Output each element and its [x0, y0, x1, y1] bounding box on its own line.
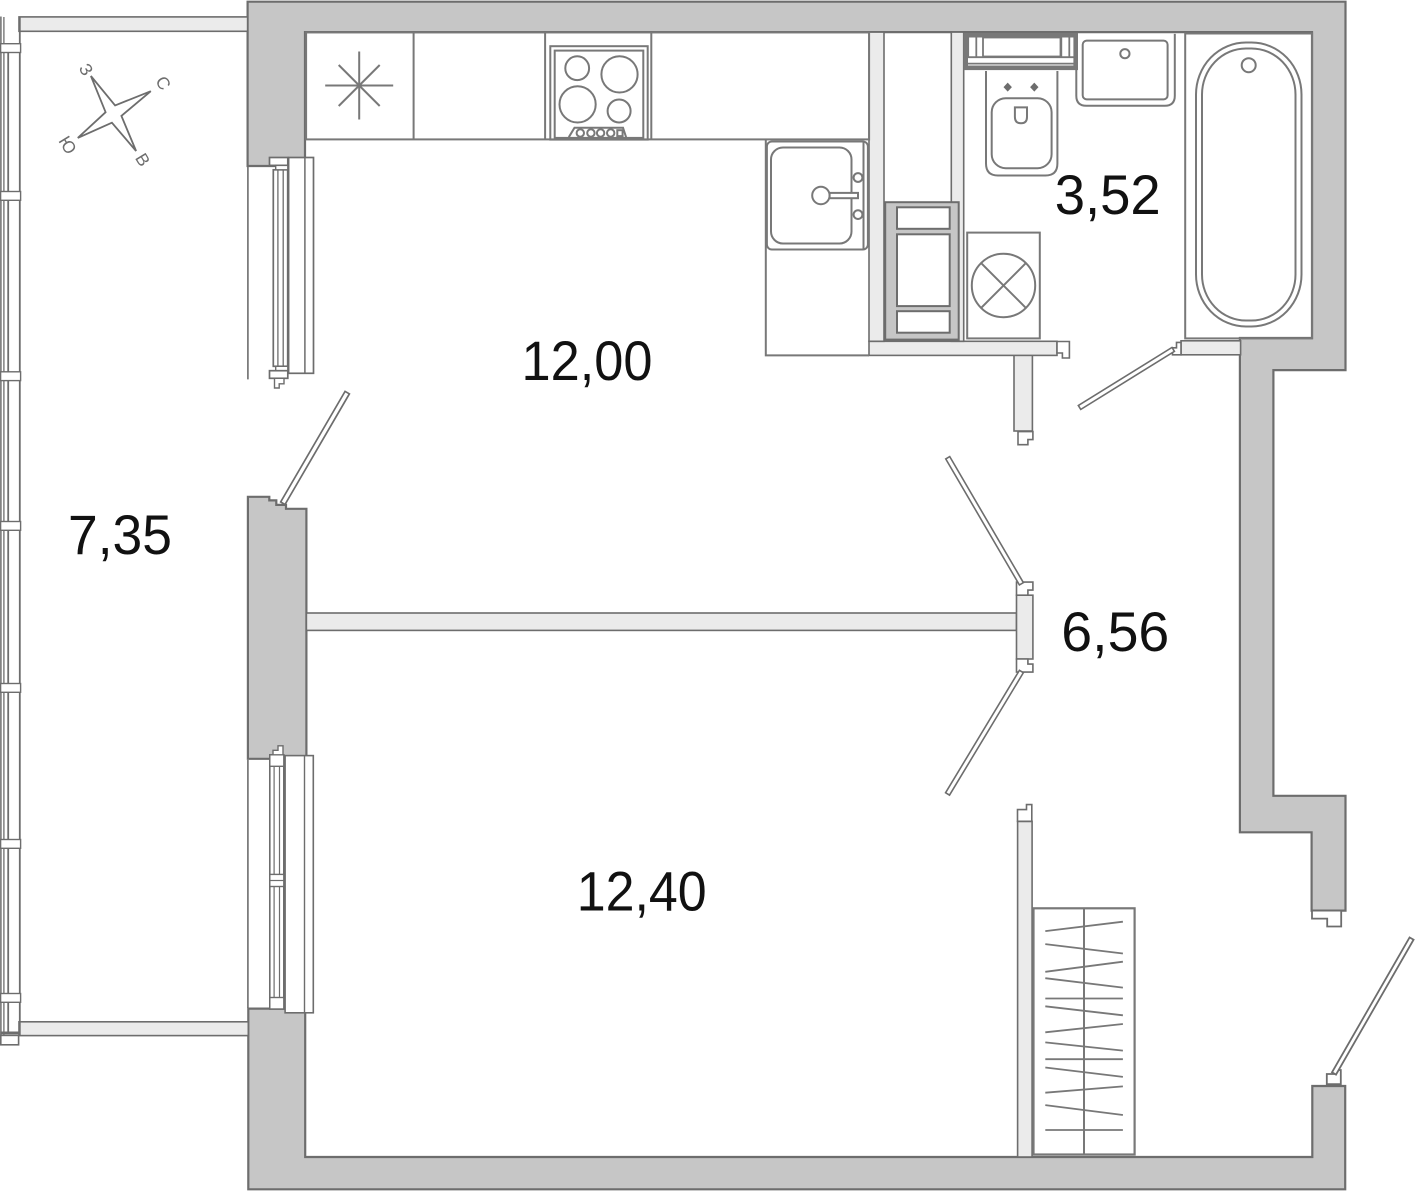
svg-text:3,52: 3,52: [1055, 163, 1161, 226]
svg-text:В: В: [131, 150, 154, 170]
svg-text:12,00: 12,00: [522, 329, 653, 392]
svg-text:12,40: 12,40: [577, 860, 707, 923]
svg-text:З: З: [75, 60, 98, 79]
svg-text:Ю: Ю: [55, 132, 81, 157]
svg-text:С: С: [152, 72, 176, 93]
svg-text:6,56: 6,56: [1061, 600, 1169, 663]
svg-text:7,35: 7,35: [68, 503, 172, 566]
